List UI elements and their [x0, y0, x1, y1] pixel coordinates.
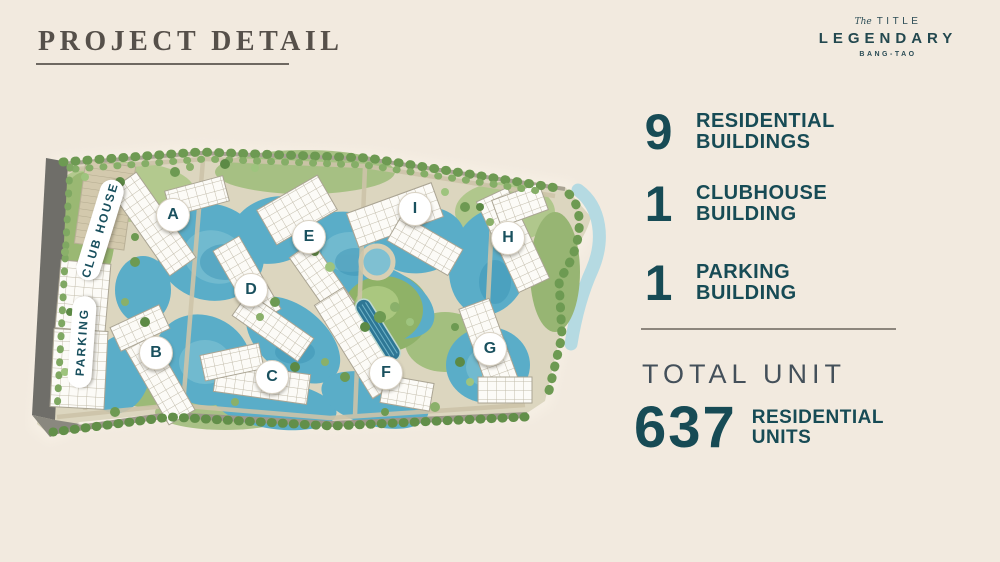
page-title: PROJECT DETAIL [38, 26, 343, 58]
building-badge-c: C [255, 360, 289, 394]
project-location: BANG-TAO [806, 51, 970, 58]
building-badge-h-label: H [502, 229, 514, 247]
building-badge-i: I [398, 192, 432, 226]
building-badge-b: B [139, 336, 173, 370]
stat-clubhouse-building-value: 1 [630, 179, 686, 229]
stat-parking-building-label: PARKING BUILDING [696, 262, 797, 304]
building-badge-f: F [369, 356, 403, 390]
project-detail-slide: PROJECT DETAIL TheTITLE LEGENDARY BANG-T… [0, 0, 1000, 562]
brand-title-text: TITLE [877, 16, 922, 27]
stat-residential-buildings-value: 9 [630, 107, 686, 157]
stat-residential-buildings-label: RESIDENTIAL BUILDINGS [696, 111, 835, 153]
building-badge-c-label: C [266, 368, 278, 386]
building-badge-e-label: E [304, 228, 315, 246]
brand-script-the: The [855, 17, 872, 27]
total-units-label: RESIDENTIAL UNITS [752, 408, 884, 448]
building-badge-a-label: A [167, 206, 179, 224]
stats-divider [641, 328, 896, 330]
total-units-stat: 637 RESIDENTIAL UNITS [634, 401, 884, 455]
stat-clubhouse-building-label: CLUBHOUSE BUILDING [696, 183, 827, 225]
building-badge-e: E [292, 220, 326, 254]
building-badge-g: G [473, 332, 507, 366]
building-badge-g-label: G [484, 340, 496, 358]
parking-label: PARKING [73, 307, 92, 376]
building-badge-a: A [156, 198, 190, 232]
building-badge-f-label: F [381, 364, 391, 382]
stat-residential-buildings: 9 RESIDENTIAL BUILDINGS [630, 104, 835, 160]
total-unit-heading: TOTAL UNIT [642, 359, 846, 390]
brand-logo: TheTITLE LEGENDARY BANG-TAO [806, 16, 970, 58]
building-badge-b-label: B [150, 344, 162, 362]
total-units-value: 637 [634, 399, 737, 457]
brand-name: TheTITLE [806, 16, 970, 27]
building-badge-h: H [491, 221, 525, 255]
building-badge-i-label: I [413, 200, 417, 218]
title-underline [36, 63, 289, 65]
stat-parking-building-value: 1 [630, 258, 686, 308]
building-badge-d: D [234, 273, 268, 307]
site-plan-illustration [25, 112, 620, 482]
stat-parking-building: 1 PARKING BUILDING [630, 255, 797, 311]
project-name: LEGENDARY [806, 30, 970, 47]
stat-clubhouse-building: 1 CLUBHOUSE BUILDING [630, 176, 827, 232]
site-plan: CLUB HOUSE PARKING A B C D E F G H I [25, 112, 620, 482]
building-badge-d-label: D [245, 281, 257, 299]
